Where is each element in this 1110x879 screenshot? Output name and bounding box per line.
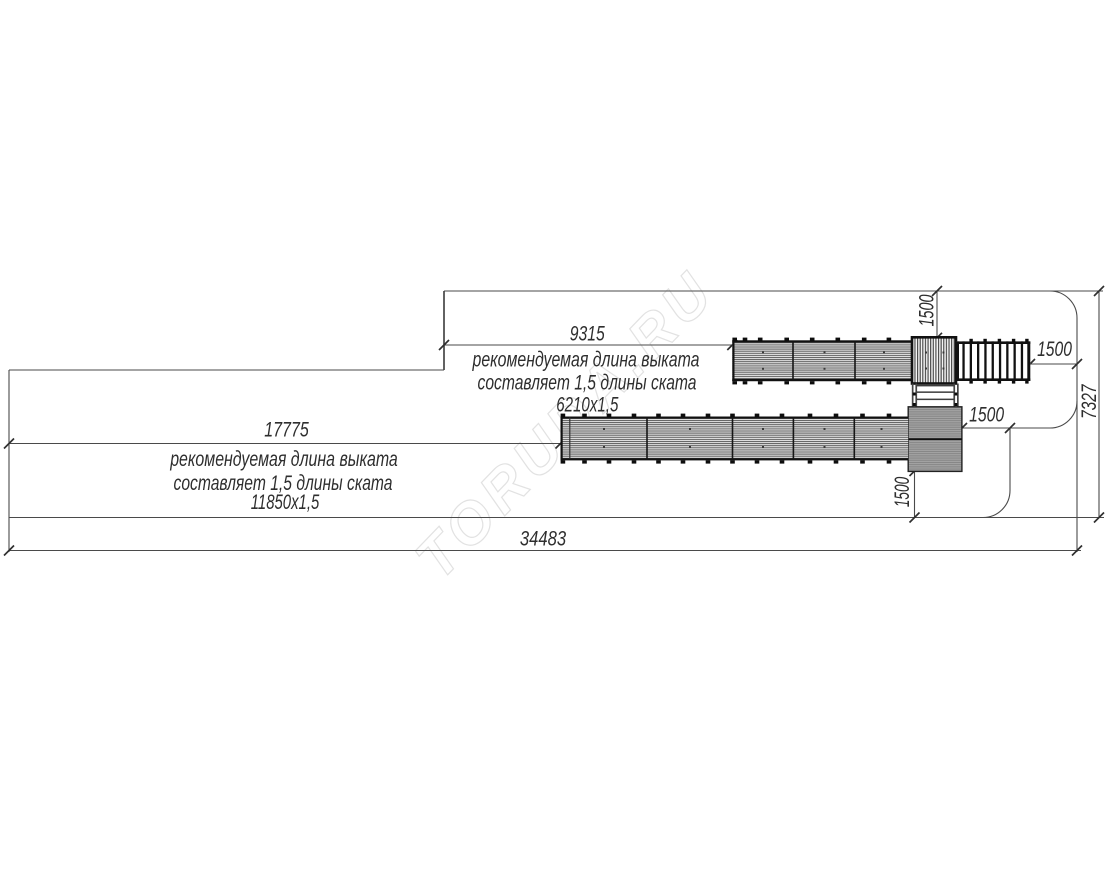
svg-text:1500: 1500 xyxy=(1037,338,1072,361)
svg-text:6210х1,5: 6210х1,5 xyxy=(556,394,618,417)
svg-text:1500: 1500 xyxy=(969,403,1004,426)
svg-text:11850х1,5: 11850х1,5 xyxy=(251,491,320,514)
svg-text:7327: 7327 xyxy=(1078,384,1101,419)
svg-text:17775: 17775 xyxy=(264,419,309,442)
svg-text:34483: 34483 xyxy=(520,528,566,551)
svg-text:составляет 1,5 длины ската: составляет 1,5 длины ската xyxy=(478,371,697,394)
svg-text:1500: 1500 xyxy=(916,294,939,326)
svg-text:рекомендуемая длина выката: рекомендуемая длина выката xyxy=(472,348,700,371)
svg-text:9315: 9315 xyxy=(570,323,605,346)
svg-text:рекомендуемая длина выката: рекомендуемая длина выката xyxy=(169,448,397,471)
svg-text:1500: 1500 xyxy=(891,477,914,508)
